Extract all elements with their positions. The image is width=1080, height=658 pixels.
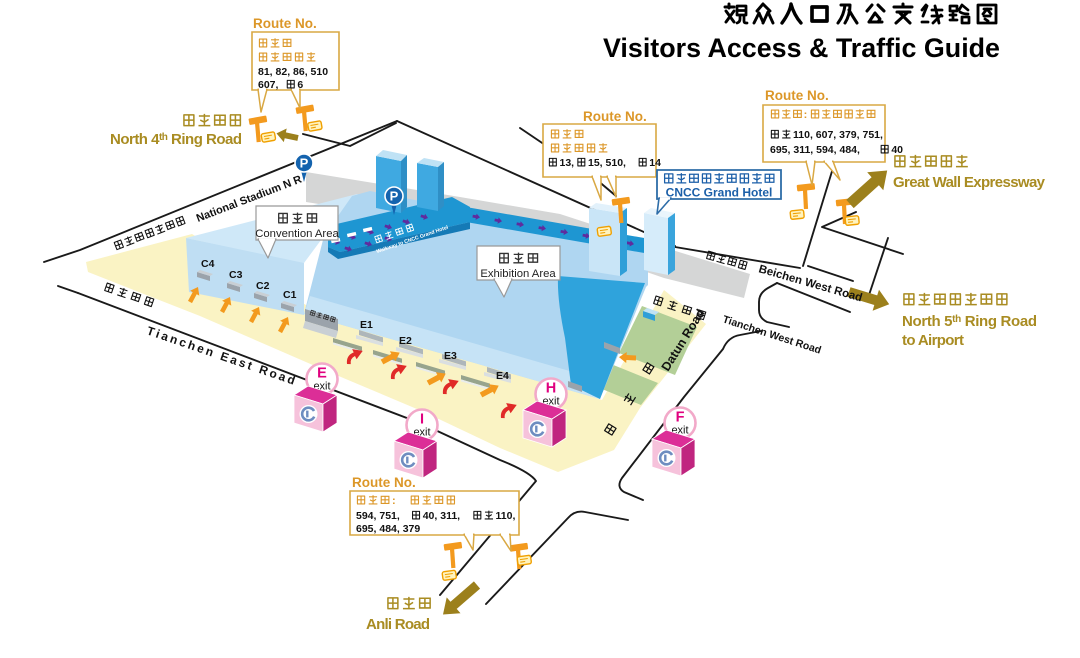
svg-text:110, 607, 379, 751,: 110, 607, 379, 751, [793,129,883,141]
svg-text:E1: E1 [360,319,373,331]
svg-text:North 5th Ring Road: North 5th Ring Road [902,313,1037,330]
svg-text:607,: 607, [258,79,279,91]
svg-text:C1: C1 [283,289,297,301]
svg-text:Great Wall Expressway: Great Wall Expressway [893,174,1046,191]
svg-text::: : [804,109,808,121]
svg-text:Anli Road: Anli Road [366,616,430,633]
svg-text:40, 311,: 40, 311, [423,510,460,522]
svg-text:E2: E2 [399,335,412,347]
svg-text:Route No.: Route No. [583,109,647,124]
svg-text:81, 82, 86, 510: 81, 82, 86, 510 [258,66,328,78]
svg-text:14: 14 [649,157,661,169]
svg-text:Exhibition Area: Exhibition Area [480,268,556,280]
svg-text:40: 40 [891,144,903,156]
svg-text:E3: E3 [444,350,457,362]
svg-text::: : [392,495,396,507]
svg-text:C3: C3 [229,269,243,281]
svg-text:H: H [546,381,556,397]
svg-text:E: E [317,366,327,382]
svg-text:Route No.: Route No. [765,88,829,103]
svg-text:P: P [300,156,309,171]
svg-text:695, 484, 379: 695, 484, 379 [356,523,420,535]
svg-text:13,: 13, [560,157,575,169]
svg-text:Visitors Access & Traffic Guid: Visitors Access & Traffic Guide [603,33,1000,63]
svg-text:Convention Area: Convention Area [255,228,339,240]
svg-text:F: F [676,410,685,426]
svg-text:110,: 110, [496,510,516,522]
svg-text:Route No.: Route No. [253,16,317,31]
svg-text:to Airport: to Airport [902,332,964,349]
svg-text:E4: E4 [496,370,509,382]
svg-text:C2: C2 [256,280,270,292]
svg-text:P: P [390,189,399,204]
svg-text:C4: C4 [201,258,215,270]
svg-text:North 4th Ring Road: North 4th Ring Road [110,131,242,148]
svg-text:CNCC Grand Hotel: CNCC Grand Hotel [666,186,773,200]
svg-text:594, 751,: 594, 751, [356,510,400,522]
svg-text:I: I [420,412,424,428]
svg-text:695, 311, 594, 484,: 695, 311, 594, 484, [770,144,860,156]
svg-text:6: 6 [297,79,303,91]
svg-text:Route No.: Route No. [352,475,416,490]
svg-text:15, 510,: 15, 510, [588,157,626,169]
